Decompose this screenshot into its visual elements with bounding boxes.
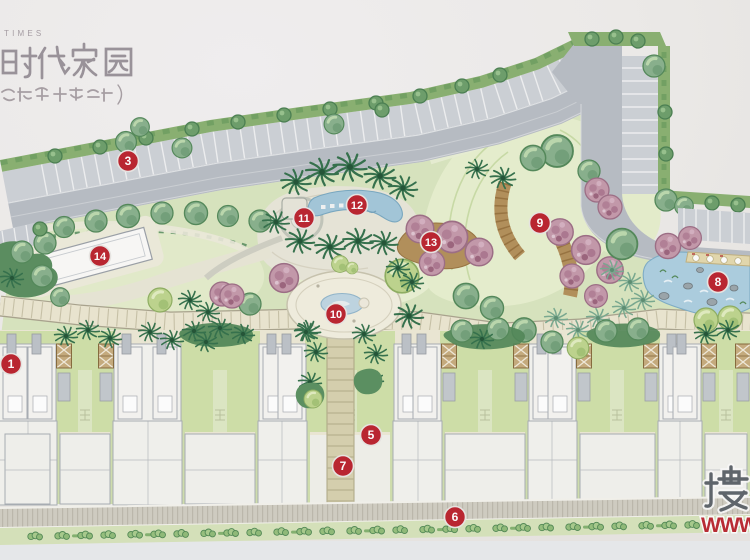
svg-text:10: 10 xyxy=(330,309,342,321)
svg-text:5: 5 xyxy=(368,428,375,442)
svg-text:12: 12 xyxy=(351,200,363,212)
svg-text:14: 14 xyxy=(94,251,107,263)
svg-text:9: 9 xyxy=(537,216,544,230)
svg-text:6: 6 xyxy=(452,510,459,524)
svg-text:WWW: WWW xyxy=(701,514,750,537)
svg-text:1: 1 xyxy=(8,357,15,371)
svg-text:7: 7 xyxy=(340,459,347,473)
svg-text:TIMES: TIMES xyxy=(4,29,44,38)
svg-text:3: 3 xyxy=(125,154,132,168)
svg-text:13: 13 xyxy=(425,237,437,249)
svg-text:11: 11 xyxy=(298,213,310,225)
svg-text:8: 8 xyxy=(715,275,722,289)
